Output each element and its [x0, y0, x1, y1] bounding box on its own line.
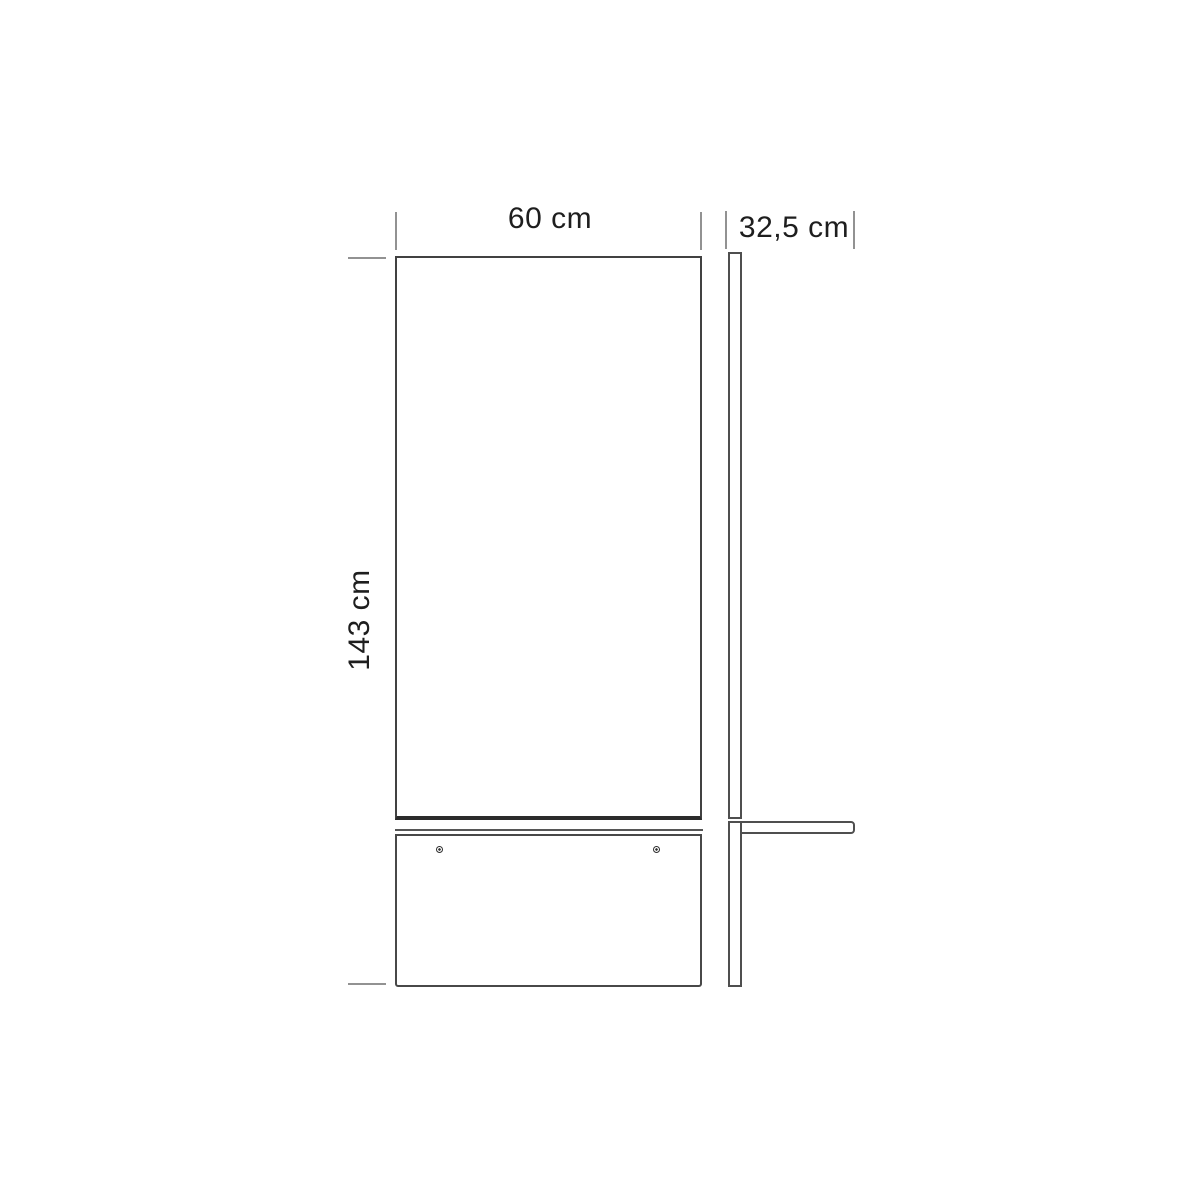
width-dim-tick-right	[700, 212, 702, 250]
side-panel-upper	[728, 252, 742, 819]
screw-left-icon	[436, 846, 443, 853]
height-dimension-label: 143 cm	[344, 550, 376, 690]
screw-right-icon	[653, 846, 660, 853]
depth-dimension-label: 32,5 cm	[719, 212, 869, 244]
dimension-diagram: 60 cm 32,5 cm 143 cm	[0, 0, 1200, 1200]
width-dimension-label: 60 cm	[475, 203, 625, 235]
side-panel-lower	[728, 821, 742, 987]
height-dim-tick-bottom	[348, 983, 386, 985]
front-mirror-panel	[395, 256, 702, 820]
front-shelf-edge-line	[395, 829, 703, 831]
side-shelf	[740, 821, 855, 834]
width-dim-tick-left	[395, 212, 397, 250]
height-dim-tick-top	[348, 257, 386, 259]
front-lower-panel	[395, 834, 702, 987]
